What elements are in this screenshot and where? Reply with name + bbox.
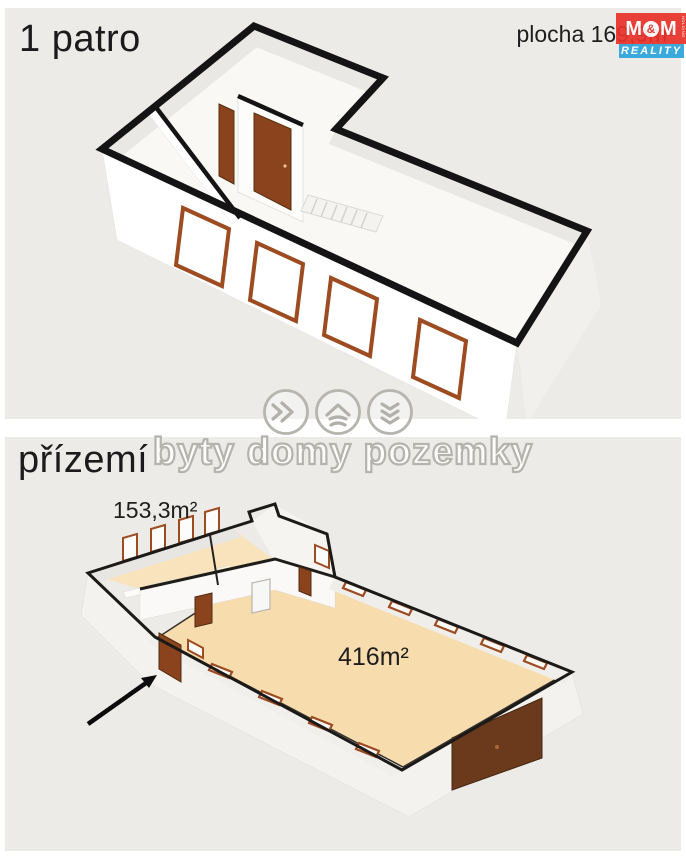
logo-holding-label: HOLDING (681, 16, 685, 38)
first-floor-plan (5, 8, 681, 419)
entrance-arrow (88, 675, 157, 724)
interior-door-narrow (219, 104, 234, 184)
white-door (252, 579, 270, 613)
hall-area-label: 416m² (338, 643, 409, 672)
entry-door (299, 567, 311, 596)
watermark-text: byty domy pozemky (0, 431, 686, 474)
logo-ampersand: & (643, 21, 659, 37)
logo-m-left: M (625, 19, 642, 39)
ground-floor-panel: přízemí 153,3m² 416m² (5, 437, 681, 851)
first-floor-panel: 1 patro plocha 169,9m² (5, 8, 681, 419)
annex-area-label: 153,3m² (113, 497, 197, 524)
agency-logo: M & M HOLDING REALITY (616, 13, 686, 58)
annex-door (195, 593, 212, 627)
logo-top-row: M & M HOLDING (616, 13, 686, 44)
first-floor-label: 1 patro (19, 18, 141, 61)
logo-reality-bar: REALITY (619, 44, 684, 58)
logo-m-right: M (660, 19, 677, 39)
real-estate-floorplan-image: { "top_panel": { "floor_label": "1 patro… (0, 0, 686, 857)
